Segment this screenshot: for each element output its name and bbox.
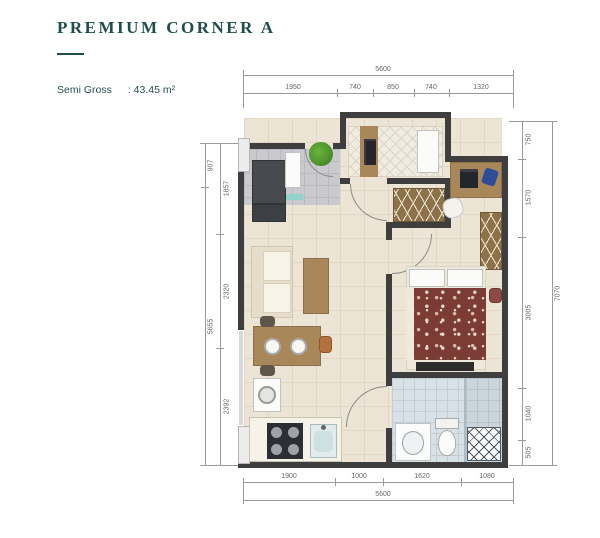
area-info: Semi Gross: 43.45 m² (57, 84, 175, 96)
wall-bedroom2-top (340, 112, 451, 118)
floorplan-page: PREMIUM CORNER A Semi Gross: 43.45 m² 56… (0, 0, 600, 538)
dim-left-inner: 2320 (223, 277, 232, 307)
entry-mat (286, 194, 303, 200)
dim-ext (243, 70, 244, 108)
dim-top-overall: 5600 (363, 65, 403, 74)
dim-tick (518, 388, 526, 389)
plate (290, 338, 307, 355)
sofa-cushion (263, 283, 291, 313)
plate (264, 338, 281, 355)
wall-bedroom2-bottom-b (387, 178, 451, 184)
wall-bathroom-left-lower (386, 428, 392, 468)
dim-tick (518, 159, 526, 160)
area-label: Semi Gross (57, 84, 112, 96)
dim-bottom-seg-line (243, 482, 513, 483)
stove-burner (271, 427, 282, 438)
dim-left-outer-line (205, 143, 206, 465)
wall-bottom (238, 462, 508, 468)
column (238, 138, 250, 172)
wall-entry-top-right (333, 143, 340, 149)
dim-bottom-seg: 1620 (402, 472, 442, 481)
dim-top-overall-line (243, 75, 513, 76)
stove-burner (288, 427, 299, 438)
shower-partition (464, 378, 466, 462)
dim-tick (518, 237, 526, 238)
dim-left-inner: 2392 (223, 392, 232, 422)
dim-bottom-overall: 5600 (363, 490, 403, 499)
master-bed-sheet-fold (406, 288, 414, 360)
dim-top-seg: 850 (373, 83, 413, 92)
bedroom2-pillow (417, 130, 439, 173)
hall-wardrobe (393, 188, 445, 222)
sink-basin (314, 431, 333, 452)
dim-tick (461, 478, 462, 486)
window-left (238, 330, 244, 426)
entry-cabinet (252, 160, 286, 204)
dim-ext (509, 121, 557, 122)
dim-left-inner: 1857 (223, 174, 232, 204)
wall-bathroom-left-upper (386, 378, 392, 386)
wall-closet-bottom (386, 222, 451, 228)
dim-top-seg: 740 (335, 83, 375, 92)
dim-ext (200, 465, 238, 466)
dim-tick (216, 234, 224, 235)
shoe-bench (285, 152, 301, 188)
wall-master-left-lower (386, 274, 392, 378)
page-title: PREMIUM CORNER A (57, 18, 276, 38)
dim-bottom-seg: 1900 (269, 472, 309, 481)
dim-tick (335, 478, 336, 486)
dim-tick (383, 478, 384, 486)
stove-burner (288, 444, 299, 455)
dining-chair (260, 316, 275, 327)
sofa-cushion (263, 251, 291, 281)
wall-right (502, 156, 508, 468)
dining-chair-orange (319, 336, 332, 353)
dim-tick (201, 187, 209, 188)
bedroom2-tray (364, 139, 376, 165)
vanity-basin (402, 431, 424, 455)
dim-top-seg-line (243, 93, 513, 94)
dim-top-seg: 740 (411, 83, 451, 92)
floorplan (238, 112, 508, 468)
dim-right-seg: 3005 (525, 298, 534, 328)
dim-bottom-seg: 1080 (467, 472, 507, 481)
master-pillow-right (447, 269, 483, 287)
wall-bedroom2-bottom-a (340, 178, 350, 184)
dim-right-seg: 750 (525, 125, 534, 155)
toilet-bowl (438, 430, 456, 456)
dim-tick (216, 348, 224, 349)
master-bed-quilt (406, 288, 486, 360)
stove-burner (271, 444, 282, 455)
dim-ext (200, 143, 238, 144)
dim-left-inner-line (220, 143, 221, 465)
title-underline (57, 53, 84, 55)
dim-right-overall: 7070 (554, 279, 563, 309)
master-wardrobe (480, 212, 502, 270)
master-pillow-left (409, 269, 445, 287)
dim-top-seg: 1950 (273, 83, 313, 92)
laptop-icon (460, 169, 478, 188)
dim-right-seg: 1570 (525, 183, 534, 213)
bed-bench (416, 362, 474, 371)
master-armchair (489, 288, 502, 303)
washing-machine-door (258, 386, 276, 404)
dim-left-outer: 5655 (207, 312, 216, 342)
dim-left-outer: 907 (207, 151, 216, 181)
area-value: : 43.45 m² (128, 84, 175, 96)
dim-top-seg: 1320 (461, 83, 501, 92)
dim-right-inner-line (522, 121, 523, 465)
dim-ext (513, 478, 514, 504)
wall-bedroom2-right (445, 112, 451, 162)
dim-bottom-overall-line (243, 500, 513, 501)
dim-right-seg: 1040 (525, 399, 534, 429)
entry-cabinet-lower (252, 204, 286, 222)
dim-right-seg: 505 (525, 438, 534, 468)
dim-ext (513, 70, 514, 108)
shower-drain-grate (467, 427, 501, 461)
toilet-tank (435, 418, 459, 429)
dining-chair (260, 365, 275, 376)
plant-icon (309, 142, 333, 166)
dim-bottom-seg: 1000 (339, 472, 379, 481)
coffee-table (303, 258, 329, 314)
sink-faucet (321, 425, 326, 430)
wall-bathroom-top (386, 372, 508, 378)
